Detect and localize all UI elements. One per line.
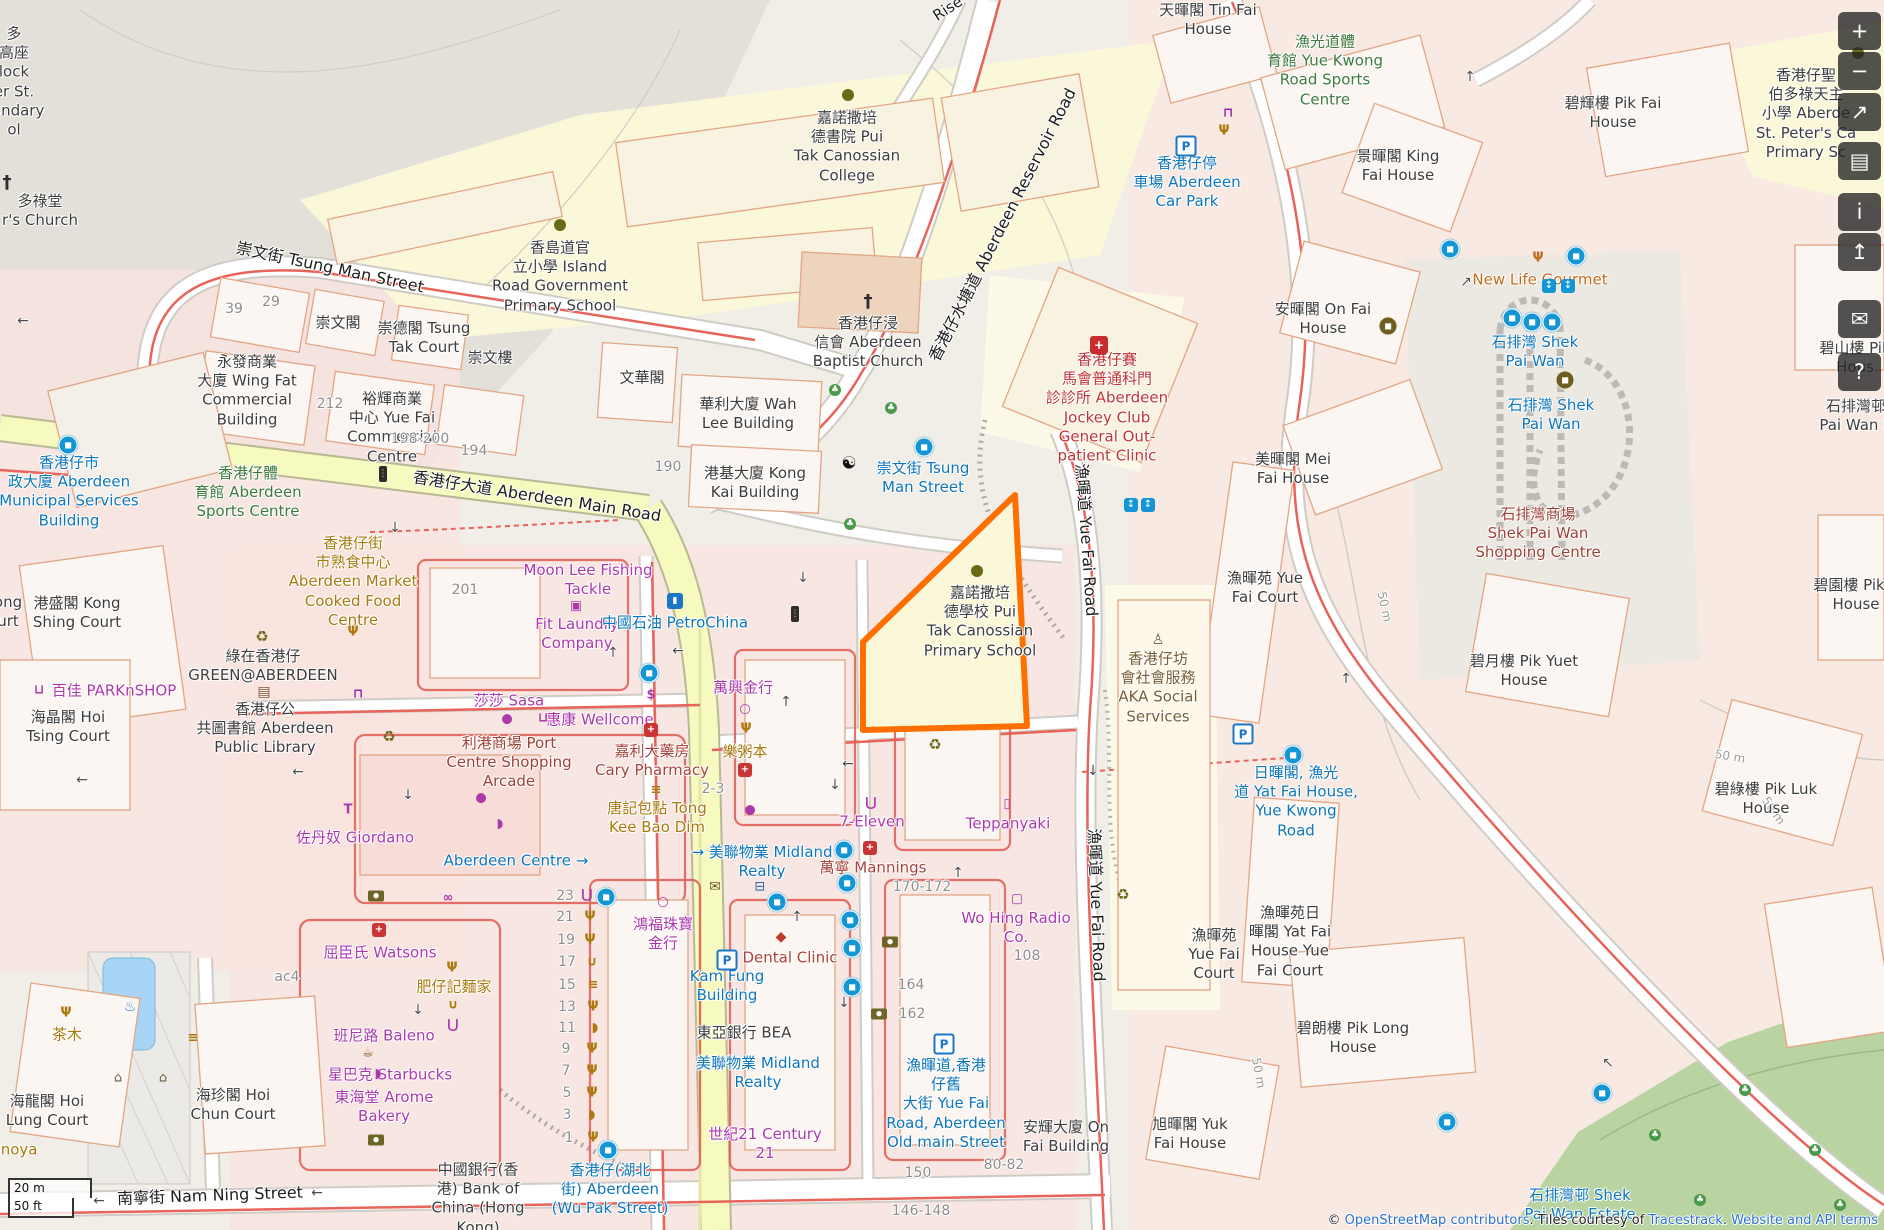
bus-icon: ■ xyxy=(59,436,78,455)
bus-icon: ■ xyxy=(1441,240,1460,259)
restaurant-icon: Ψ xyxy=(60,1007,71,1020)
minoya-frag-label: inoya xyxy=(0,1140,37,1159)
giordano-label: 佐丹奴 Giordano xyxy=(296,828,414,847)
basket-icon: ⋃ xyxy=(582,889,593,902)
tree-icon: ♣ xyxy=(1739,1084,1751,1096)
shopnumber-5-label: 5 xyxy=(563,1085,572,1103)
housenumber-29-label: 29 xyxy=(262,294,280,312)
rise-road-frag-label: Rise xyxy=(930,0,967,26)
bread-amber-icon: ◗ xyxy=(592,1022,599,1035)
church-icon: † xyxy=(3,174,12,192)
aberdeen-reservoir-road-label: 香港仔水塘道 Aberdeen Reservoir Road xyxy=(925,85,1081,365)
bus-icon: ■ xyxy=(838,874,857,893)
query-features-icon: ? xyxy=(1854,360,1865,384)
seven-eleven-label: 7-Eleven xyxy=(839,812,904,831)
midland-realty-upper-label: → 美聯物業 Midland Realty xyxy=(691,843,832,881)
fork-icon: Ψ xyxy=(587,1001,598,1014)
housenumber-162-label: 162 xyxy=(899,1006,926,1024)
bus-icon: ■ xyxy=(1567,247,1586,266)
parknshop-label: 百佳 PARKnSHOP xyxy=(52,681,177,700)
bread-icon: ◗ xyxy=(497,818,504,831)
oneway-arrow-icon: ← xyxy=(672,643,684,659)
shopnumber-9-label: 9 xyxy=(562,1041,571,1059)
baleno-label: 班尼路 Baleno xyxy=(333,1026,434,1045)
housenumber-212-label: 212 xyxy=(317,396,344,414)
port-centre-shopping-arcade-label: 利港商場 Port Centre Shopping Arcade xyxy=(446,734,571,792)
oneway-arrow-icon: ↓ xyxy=(797,570,809,586)
petrochina-label: 中國石油 PetroChina xyxy=(602,613,748,632)
housenumber-201-label: 201 xyxy=(452,582,479,600)
yinyang-icon: ☯ xyxy=(841,456,856,473)
fork-icon: Ψ xyxy=(586,1087,597,1100)
envelope-icon: ✉ xyxy=(709,880,721,894)
restaurant-orange-icon: Ψ xyxy=(1532,252,1543,265)
sasa-label: 莎莎 Sasa xyxy=(474,691,545,710)
yat-fai-house-label: 漁暉苑日 暉閣 Yat Fai House Yue Fai Court xyxy=(1249,904,1331,981)
pik-luk-house-label: 碧綠樓 Pik Luk House xyxy=(1715,780,1817,818)
traffic-light-icon: ⋮ xyxy=(791,606,799,622)
burger-icon: ≡ xyxy=(588,979,599,992)
old-main-street-stop-label: 漁暉道,香港 仔舊 大街 Yue Fai Road, Aberdeen Old … xyxy=(886,1056,1006,1152)
wellcome-label: 惠康 Wellcome xyxy=(546,710,654,729)
watsons-label: 屈臣氏 Watsons xyxy=(323,943,436,962)
pui-tak-primary-school-label: 嘉諾撒培 德學校 Pui Tak Canossian Primary Schoo… xyxy=(924,584,1037,661)
housenumber-150-label: 150 xyxy=(905,1165,932,1183)
oneway-arrow-icon: ↓ xyxy=(389,520,401,536)
century-21-label: 世紀21 Century 21 xyxy=(708,1125,822,1163)
zoom-in-button[interactable]: + xyxy=(1838,12,1881,50)
attribution-copyright: © xyxy=(1328,1213,1345,1228)
jockey-club-clinic-label: 香港仔賽 馬會普通科門 診診所 Aberdeen Jockey Club Gen… xyxy=(1046,350,1168,465)
restaurant-icon: Ψ xyxy=(347,626,358,639)
housenumber-ac4-label: ac4 xyxy=(274,969,299,987)
man-hing-jewellery-label: 萬興金行 xyxy=(713,678,773,697)
oneway-arrow-icon: ↑ xyxy=(952,865,964,881)
pik-yuet-house-label: 碧月樓 Pik Yuet House xyxy=(1470,652,1578,690)
minibus-icon: ■ xyxy=(1379,317,1398,336)
kam-fung-building-label: Kam Fung Building xyxy=(690,967,765,1005)
municipal-services-building-label: 香港仔市 政大廈 Aberdeen Municipal Services Bui… xyxy=(0,454,139,531)
housenumber-194-label: 194 xyxy=(461,443,488,461)
cart-icon: ⊔ xyxy=(538,712,548,725)
banknote-icon: ● xyxy=(368,891,384,902)
banknote-icon: ● xyxy=(368,1135,384,1146)
scale-bar: 20 m 50 ft xyxy=(8,1178,92,1218)
school-icon: ● xyxy=(971,565,983,577)
bus-icon: ■ xyxy=(597,888,616,907)
housenumber-2-3-label: 2-3 xyxy=(702,781,725,799)
info-icon: i xyxy=(1857,200,1863,224)
pik-fai-house-label: 碧輝樓 Pik Fai House xyxy=(1565,94,1662,132)
school-icon: ● xyxy=(554,219,566,231)
shopnumber-1-label: 1 xyxy=(565,1130,574,1148)
fork-icon: Ψ xyxy=(586,1043,597,1056)
yue-fai-road-1-label: 漁暉道 Yue Fai Road xyxy=(1070,463,1101,617)
tree-icon: ♣ xyxy=(844,518,856,530)
bus-icon: ■ xyxy=(1503,309,1522,328)
layers-button[interactable]: ▤ xyxy=(1838,142,1881,180)
hoi-tsing-court-label: 海晶閣 Hoi Tsing Court xyxy=(26,708,110,746)
contour-50m-2-label: 50 m xyxy=(1714,747,1747,767)
housenumber-80-82-label: 80-82 xyxy=(984,1157,1025,1175)
moon-lee-fishing-tackle-label: Moon Lee Fishing Tackle xyxy=(523,561,652,599)
share-icon: ↥ xyxy=(1851,240,1869,264)
traffic-light-icon: ⋮ xyxy=(379,466,387,482)
yue-kwong-road-sports-centre-label: 漁光道體 育館 Yue Kwong Road Sports Centre xyxy=(1267,33,1383,110)
aka-social-services-label: 香港仔坊 會社會服務 AKA Social Services xyxy=(1118,650,1197,727)
map-label-layer: 多 高座 lock er St. condary ol多祿堂 r's Churc… xyxy=(0,0,1884,1230)
hoi-chun-court-label: 海珍閣 Hoi Chun Court xyxy=(191,1086,276,1124)
wing-fat-building-label: 永發商業 大廈 Wing Fat Commercial Building xyxy=(197,353,297,430)
info-button[interactable]: i xyxy=(1838,193,1881,231)
housenumber-108-label: 108 xyxy=(1014,948,1041,966)
shek-pai-wan-stop-1-label: 石排灣 Shek Pai Wan xyxy=(1492,333,1579,371)
yue-fai-court-1-label: 漁暉苑 Yue Fai Court xyxy=(1227,569,1303,607)
kong-kai-building-label: 港基大廈 Kong Kai Building xyxy=(704,464,806,502)
oneway-arrow-icon: ↓ xyxy=(838,995,850,1011)
shirt-icon: T xyxy=(344,804,353,817)
oneway-arrow-icon: ↓ xyxy=(1087,763,1099,779)
restaurant-icon: Ψ xyxy=(1218,125,1229,138)
fei-jai-kee-noodle-label: 肥仔記麵家 xyxy=(416,977,491,996)
parking-icon: P xyxy=(1233,724,1254,745)
fork-icon: Ψ xyxy=(584,911,595,924)
oneway-arrow-icon: ↑ xyxy=(607,645,619,661)
aberdeen-car-park-label: 香港仔停 車場 Aberdeen Car Park xyxy=(1133,154,1240,212)
bus-icon: ■ xyxy=(841,911,860,930)
shek-pai-wan-shopping-centre-label: 石排灣商場 Shek Pai Wan Shopping Centre xyxy=(1475,505,1600,563)
lok-juk-bun-label: 樂粥本 xyxy=(722,742,767,761)
shek-pai-wan-stop-2-label: 石排灣 Shek Pai Wan xyxy=(1508,396,1595,434)
dental-clinic-label: Dental Clinic xyxy=(742,948,837,967)
tree-icon: ♣ xyxy=(1809,1144,1821,1156)
pergola-icon: ⊓ xyxy=(353,688,363,701)
attribution-middle: . Tiles courtesy of xyxy=(1530,1213,1649,1228)
bus-icon: ■ xyxy=(915,438,934,457)
terms-link[interactable]: Website and API terms xyxy=(1731,1213,1878,1228)
zoom-out-icon: − xyxy=(1851,59,1869,83)
book-icon: ▤ xyxy=(257,685,270,699)
share-button[interactable]: ↥ xyxy=(1838,233,1881,271)
dollar-bag-icon: $ xyxy=(646,689,655,702)
elevator-icon: ↕ xyxy=(1124,498,1138,512)
recycle-icon: ♻ xyxy=(928,738,941,753)
fork-icon: Ψ xyxy=(584,934,595,947)
attribution-separator: . xyxy=(1723,1213,1731,1228)
housenumber-164-label: 164 xyxy=(898,977,925,995)
cafe-icon: ☕ xyxy=(362,1047,374,1060)
shopnumber-19-label: 19 xyxy=(557,932,575,950)
shopnumber-17-label: 17 xyxy=(558,954,576,972)
oneway-arrow-icon: ↓ xyxy=(412,1002,424,1018)
briefcase-icon: ⊟ xyxy=(755,881,766,894)
basket-icon: ⋃ xyxy=(448,1019,459,1032)
scale-metric: 20 m xyxy=(8,1178,92,1198)
yuk-fai-house-label: 旭暉閣 Yuk Fai House xyxy=(1152,1115,1227,1153)
aberdeen-baptist-church-label: 香港仔浸 信會 Aberdeen Baptist Church xyxy=(813,314,924,372)
man-wah-court-label: 文華閣 xyxy=(619,368,664,387)
oneway-arrow-icon: ← xyxy=(17,313,29,329)
parking-icon: P xyxy=(934,1034,955,1055)
pik-yuen-house-frag-label: 碧園樓 Pik Y House xyxy=(1813,576,1884,614)
apple-icon: ● xyxy=(744,804,755,817)
left-edge-frag-label: ong urt xyxy=(0,593,22,631)
tsung-tak-court-label: 崇德閣 Tsung Tak Court xyxy=(378,319,471,357)
burger-icon: ≡ xyxy=(651,784,662,797)
green-at-aberdeen-label: 綠在香港仔 GREEN@ABERDEEN xyxy=(188,647,337,685)
bus-icon: ■ xyxy=(843,978,862,997)
elevator-icon: ↕ xyxy=(1141,498,1155,512)
bus-icon: ■ xyxy=(640,664,659,683)
arome-bakery-label: 東海堂 Arome Bakery xyxy=(335,1088,434,1126)
pill-icon: + xyxy=(863,841,877,855)
aberdeen-main-road-label: 香港仔大道 Aberdeen Main Road xyxy=(412,467,663,526)
wu-pak-street-stop-label: 香港仔(湖北 街) Aberdeen (Wu Pak Street) xyxy=(552,1161,669,1219)
cart-icon: ⊔ xyxy=(34,684,44,697)
shopnumber-3-label: 3 xyxy=(563,1107,572,1125)
scale-imperial: 50 ft xyxy=(8,1198,74,1218)
aberdeen-market-cooked-food-centre-label: 香港仔街 市熟食中心 Aberdeen Market Cooked Food C… xyxy=(289,534,418,630)
locate-icon: ↗ xyxy=(1851,100,1869,124)
tree-icon: ♣ xyxy=(885,402,897,414)
layers-icon: ▤ xyxy=(1850,149,1870,173)
yue-fai-road-2-label: 漁暉道 Yue Fai Road xyxy=(1083,828,1109,982)
kong-shing-court-label: 港盛閣 Kong Shing Court xyxy=(33,594,121,632)
new-life-gourmet-label: New Life Gourmet xyxy=(1472,270,1607,289)
query-features-button[interactable]: ? xyxy=(1838,353,1881,391)
aberdeen-sports-centre-label: 香港仔體 育館 Aberdeen Sports Centre xyxy=(194,464,301,522)
banknote-icon: ● xyxy=(882,937,898,948)
parking-icon: P xyxy=(717,950,738,971)
bus-icon: ■ xyxy=(843,939,862,958)
st-peters-secondary-frag-label: 多 高座 lock er St. condary ol xyxy=(0,24,44,139)
bea-label: 東亞銀行 BEA xyxy=(697,1023,792,1042)
teppanyaki-label: Teppanyaki xyxy=(966,814,1051,833)
oneway-arrow-icon: ↑ xyxy=(791,909,803,925)
midland-realty-lower-label: 美聯物業 Midland Realty xyxy=(696,1054,820,1092)
pill-icon: + xyxy=(644,723,658,737)
tin-fai-house-label: 天暉閣 Tin Fai House xyxy=(1159,1,1257,39)
pill-icon: + xyxy=(738,763,752,777)
contour-50m-4-label: 50 m xyxy=(1248,1057,1268,1090)
add-note-button[interactable]: ✉ xyxy=(1838,300,1881,338)
island-road-govt-primary-school-label: 香島道官 立小學 Island Road Government Primary … xyxy=(492,239,628,316)
pik-long-house-label: 碧朗樓 Pik Long House xyxy=(1297,1019,1409,1057)
shopnumber-11-label: 11 xyxy=(558,1020,576,1038)
hung-fook-jewellery-label: 鴻福珠寶 金行 xyxy=(633,915,693,953)
pavilion-icon: ⌂ xyxy=(114,1072,122,1085)
school-icon: ● xyxy=(842,89,854,101)
banknote-icon: ● xyxy=(871,1009,887,1020)
pill-icon: + xyxy=(372,923,386,937)
cary-pharmacy-label: 嘉利大藥房 Cary Pharmacy xyxy=(595,742,709,780)
wah-lee-building-label: 華利大廈 Wah Lee Building xyxy=(699,395,796,433)
oneway-arrow-icon: ↗ xyxy=(1460,274,1472,290)
oneway-arrow-icon: ↖ xyxy=(1602,1055,1614,1071)
oneway-arrow-icon: ← xyxy=(76,772,88,788)
st-peters-church-label: 多祿堂 r's Church xyxy=(2,192,78,230)
elevator-icon: ↕ xyxy=(1542,279,1556,293)
housenumber-39-label: 39 xyxy=(225,301,243,319)
bus-icon: ■ xyxy=(768,893,787,912)
bowl-icon: ∪ xyxy=(448,999,459,1012)
bus-icon: ■ xyxy=(1438,1113,1457,1132)
shopnumber-7-label: 7 xyxy=(562,1063,571,1081)
housenumber-170-172-label: 170-172 xyxy=(893,879,952,897)
bread-amber-icon: ◗ xyxy=(589,1109,596,1122)
ring-icon: ○ xyxy=(739,703,750,716)
oneway-arrow-icon: ← xyxy=(311,1185,323,1201)
zoom-out-button[interactable]: − xyxy=(1838,52,1881,90)
aberdeen-public-library-label: 香港仔公 共圖書館 Aberdeen Public Library xyxy=(196,700,333,758)
oneway-arrow-icon: ↑ xyxy=(1464,69,1476,85)
perfume-icon: ● xyxy=(501,713,512,726)
oneway-arrow-icon: ↓ xyxy=(829,777,841,793)
hoi-lung-court-label: 海龍閣 Hoi Lung Court xyxy=(6,1092,89,1130)
laundry-icon: ▣ xyxy=(570,600,582,613)
king-fai-house-label: 景暉閣 King Fai House xyxy=(1357,147,1440,185)
pergola-icon: ⊓ xyxy=(1223,107,1233,120)
fuel-icon: ▮ xyxy=(667,593,683,609)
zoom-in-icon: + xyxy=(1851,19,1869,43)
fork-icon: Ψ xyxy=(446,962,457,975)
church-icon: † xyxy=(864,293,873,311)
nam-ning-street-label: 南寧街 Nam Ning Street xyxy=(117,1183,304,1210)
oneway-arrow-icon: ↓ xyxy=(402,787,414,803)
fork-icon: Ψ xyxy=(586,1065,597,1078)
social-icon: ♙ xyxy=(1152,633,1165,647)
recycle-icon: ♻ xyxy=(255,630,268,645)
mannings-label: 萬寧 Mannings xyxy=(820,858,927,877)
on-fai-house-label: 安暉閣 On Fai House xyxy=(1275,300,1371,338)
pui-tak-canossian-college-label: 嘉諾撒培 德書院 Pui Tak Canossian College xyxy=(794,109,900,186)
basket-icon: ⋃ xyxy=(866,797,877,810)
minibus-icon: ■ xyxy=(1556,371,1575,390)
bread-icon: ◗ xyxy=(375,1068,382,1081)
oneway-arrow-icon: ← xyxy=(842,756,854,772)
tong-kee-bao-dim-label: 唐記包點 Tong Kee Bao Dim xyxy=(607,799,707,837)
tree-icon: ♣ xyxy=(829,384,841,396)
parking-icon: P xyxy=(1176,136,1197,157)
locate-button[interactable]: ↗ xyxy=(1838,93,1881,131)
bus-icon: ■ xyxy=(1523,313,1542,332)
elevator-icon: ↕ xyxy=(1561,279,1575,293)
pavilion-icon: ⌂ xyxy=(159,1072,167,1085)
shopnumber-15-label: 15 xyxy=(558,977,576,995)
shopnumber-23-label: 23 xyxy=(556,888,574,906)
recycle-icon: ♻ xyxy=(1116,888,1129,903)
spw-estate-frag-label: 石排灣邨 Pai Wan E xyxy=(1819,397,1884,435)
yat-fai-house-stop-label: 日暉閣, 漁光 道 Yat Fai House, Yue Kwong Road xyxy=(1234,764,1358,841)
attribution: © OpenStreetMap contributors. Tiles cour… xyxy=(1328,1213,1878,1228)
bowl-icon: ∪ xyxy=(587,956,598,969)
burger-icon: ≡ xyxy=(188,1032,199,1045)
mei-fai-house-label: 美暉閣 Mei Fai House xyxy=(1255,450,1331,488)
starbucks-label: 星巴克 Starbucks xyxy=(328,1065,452,1084)
wo-hing-radio-label: Wo Hing Radio Co. xyxy=(961,909,1070,947)
tsung-man-street-label: 崇文街 Tsung Man Street xyxy=(234,238,426,298)
add-note-icon: ✉ xyxy=(1851,307,1869,331)
tv-icon: ▢ xyxy=(1011,893,1023,906)
fountain-icon: ♨ xyxy=(124,1000,137,1014)
tree-icon: ♣ xyxy=(1834,1199,1846,1211)
cha-mu-label: 茶木 xyxy=(52,1025,82,1044)
tracestrack-link[interactable]: Tracestrack xyxy=(1648,1213,1722,1228)
bank-of-china-label: 中國銀行(香 港) Bank of China (Hong Kong) xyxy=(432,1161,525,1230)
hospital-icon: + xyxy=(1090,336,1108,354)
tree-icon: ♣ xyxy=(1649,1129,1661,1141)
tree-icon: ♣ xyxy=(1694,1194,1706,1206)
housenumber-146-148-label: 146-148 xyxy=(892,1203,951,1221)
contour-50m-1-label: 50 m xyxy=(1373,590,1394,623)
bus-icon: ■ xyxy=(1284,746,1303,765)
ring-icon: ○ xyxy=(657,896,668,909)
recycle-icon: ♻ xyxy=(382,730,395,745)
osm-contributors-link[interactable]: OpenStreetMap contributors xyxy=(1345,1213,1530,1228)
bus-icon: ■ xyxy=(835,841,854,860)
tsung-man-street-stop-label: 崇文街 Tsung Man Street xyxy=(877,459,970,497)
bus-icon: ■ xyxy=(1593,1084,1612,1103)
sung-man-court-label: 崇文閣 xyxy=(315,313,360,332)
restaurant-icon: Ψ xyxy=(740,723,751,736)
oneway-arrow-icon: ↑ xyxy=(1340,671,1352,687)
housenumber-190-label: 190 xyxy=(655,459,682,477)
perfume-icon: ● xyxy=(475,792,486,805)
on-fai-building-label: 安輝大廈 On Fai Building xyxy=(1023,1118,1109,1156)
bus-icon: ■ xyxy=(599,1141,618,1160)
sung-man-house-label: 崇文樓 xyxy=(467,348,512,367)
yue-fai-court-2-label: 漁暉苑 Yue Fai Court xyxy=(1188,926,1240,984)
aberdeen-centre-label: Aberdeen Centre → xyxy=(444,851,589,870)
bus-icon: ■ xyxy=(1543,313,1562,332)
oneway-arrow-icon: ↑ xyxy=(780,694,792,710)
oneway-arrow-icon: ← xyxy=(292,764,304,780)
fork-icon: Ψ xyxy=(587,1132,598,1145)
tooth-icon: ◆ xyxy=(776,930,787,944)
jar-icon: ▯ xyxy=(1003,798,1010,811)
glasses-icon: ∞ xyxy=(443,892,454,905)
shopnumber-13-label: 13 xyxy=(558,999,576,1017)
map-viewport[interactable]: 多 高座 lock er St. condary ol多祿堂 r's Churc… xyxy=(0,0,1884,1230)
oneway-arrow-icon: ← xyxy=(93,1193,105,1209)
shopnumber-21-label: 21 xyxy=(556,909,574,927)
yue-fai-commercial-centre-label: 裕輝商業 中心 Yue Fai Commercial Centre xyxy=(347,390,437,467)
housenumber-198-200-label: 198-200 xyxy=(391,431,450,449)
